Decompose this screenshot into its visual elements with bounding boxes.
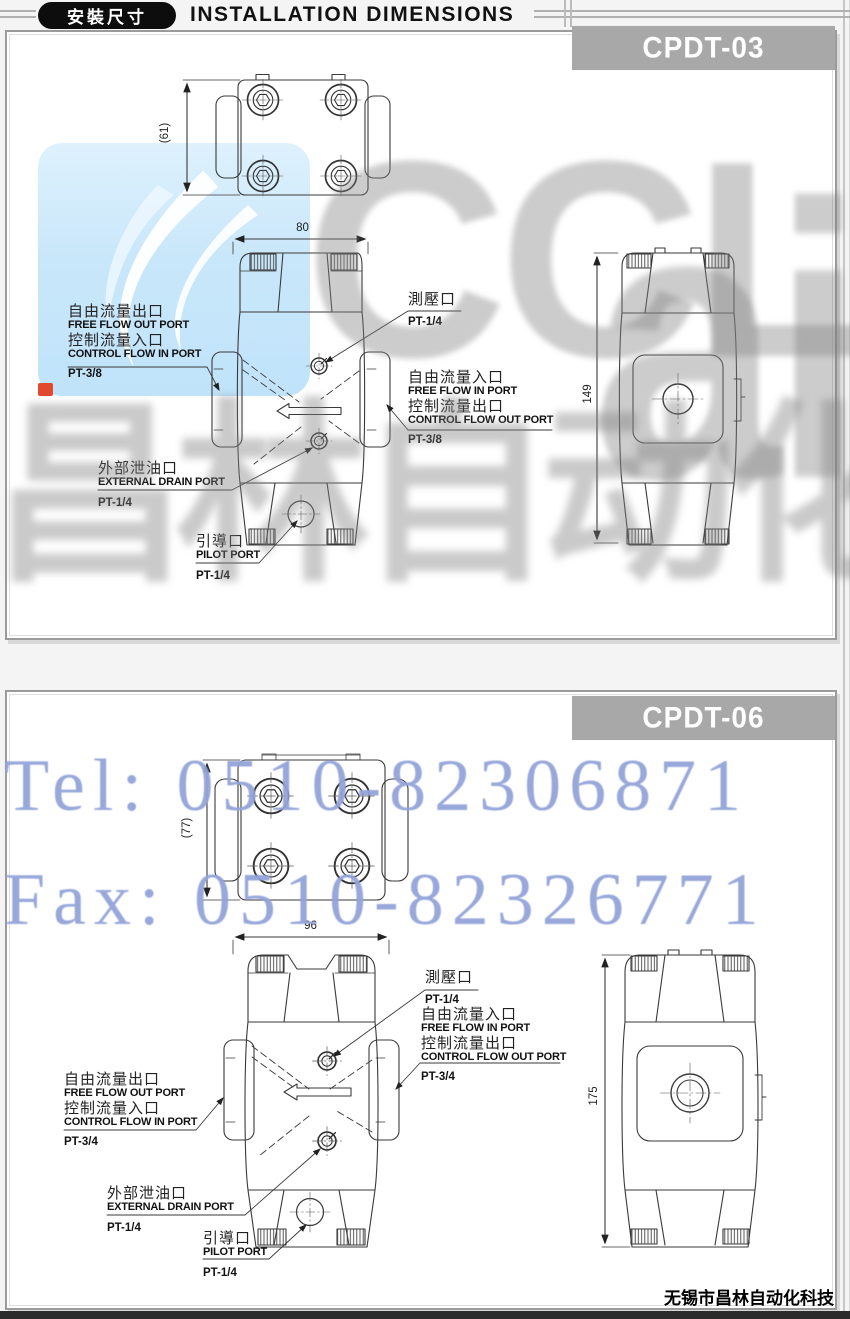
cpdt03-side-view xyxy=(594,248,745,545)
model-badge-cpdt06: CPDT-06 xyxy=(572,696,835,740)
page-bottom-strip xyxy=(0,1311,850,1319)
port-label-left-cpdt06: 自由流量出口 FREE FLOW OUT PORT 控制流量入口 CONTROL… xyxy=(64,1071,197,1148)
port-size: PT-3/4 xyxy=(421,1071,566,1083)
port-label-pilot-cpdt06: 引導口 PILOT PORT PT-1/4 xyxy=(203,1230,267,1279)
port-label-cn: 測壓口 xyxy=(408,291,456,308)
port-label-gauge-cpdt06: 測壓口 PT-1/4 xyxy=(425,969,473,1006)
model-badge-label: CPDT-06 xyxy=(642,701,764,735)
model-badge-label: CPDT-03 xyxy=(642,31,764,65)
port-label-en: EXTERNAL DRAIN PORT xyxy=(98,477,225,489)
section-badge: 安裝尺寸 xyxy=(38,2,176,29)
port-label-cn: 控制流量入口 xyxy=(68,332,201,349)
port-size: PT-1/4 xyxy=(425,994,473,1006)
port-label-en: FREE FLOW IN PORT xyxy=(421,1023,566,1035)
dim-body-height-cpdt03: 149 xyxy=(582,374,594,414)
port-label-en: FREE FLOW OUT PORT xyxy=(68,320,201,332)
port-label-en: CONTROL FLOW OUT PORT xyxy=(408,415,553,427)
port-size: PT-3/4 xyxy=(64,1136,197,1148)
port-label-left-cpdt03: 自由流量出口 FREE FLOW OUT PORT 控制流量入口 CONTROL… xyxy=(68,303,201,380)
cpdt06-top-view xyxy=(203,754,408,900)
port-label-cn: 控制流量出口 xyxy=(408,398,553,415)
port-label-en: PILOT PORT xyxy=(203,1247,267,1259)
port-label-pilot-cpdt03: 引導口 PILOT PORT PT-1/4 xyxy=(196,533,260,582)
port-label-right-cpdt06: 自由流量入口 FREE FLOW IN PORT 控制流量出口 CONTROL … xyxy=(421,1006,566,1083)
port-label-cn: 控制流量入口 xyxy=(64,1100,197,1117)
port-label-en: PILOT PORT xyxy=(196,550,260,562)
port-label-en: CONTROL FLOW OUT PORT xyxy=(421,1052,566,1064)
port-size: PT-1/4 xyxy=(203,1267,267,1279)
port-size: PT-1/4 xyxy=(196,570,260,582)
header-rule-right xyxy=(534,10,850,18)
port-label-en: CONTROL FLOW IN PORT xyxy=(64,1117,197,1129)
dim-mount-height-cpdt06: (77) xyxy=(181,811,193,845)
cpdt06-side-view xyxy=(602,950,766,1247)
dim-body-width-cpdt03: 80 xyxy=(275,222,330,234)
port-label-en: CONTROL FLOW IN PORT xyxy=(68,349,201,361)
port-size: PT-3/8 xyxy=(68,368,201,380)
catalog-page: 安裝尺寸 INSTALLATION DIMENSIONS CPDT-03 CPD… xyxy=(0,0,850,1319)
header-rule-left xyxy=(0,10,36,18)
cpdt03-top-view xyxy=(183,75,390,198)
port-label-cn: 自由流量入口 xyxy=(421,1006,566,1023)
port-label-gauge-cpdt03: 測壓口 PT-1/4 xyxy=(408,291,456,328)
port-label-right-cpdt03: 自由流量入口 FREE FLOW IN PORT 控制流量出口 CONTROL … xyxy=(408,369,553,446)
dim-body-width-cpdt06: 96 xyxy=(283,920,338,932)
port-label-cn: 自由流量入口 xyxy=(408,369,553,386)
port-label-en: FREE FLOW IN PORT xyxy=(408,386,553,398)
section-badge-label: 安裝尺寸 xyxy=(67,3,147,28)
footer-company-name: 无锡市昌林自动化科技 xyxy=(664,1284,834,1309)
port-label-cn: 外部泄油口 xyxy=(98,460,225,477)
port-label-cn: 引導口 xyxy=(203,1230,267,1247)
model-badge-cpdt03: CPDT-03 xyxy=(572,26,835,70)
page-title: INSTALLATION DIMENSIONS xyxy=(190,3,514,27)
port-label-drain-cpdt06: 外部泄油口 EXTERNAL DRAIN PORT PT-1/4 xyxy=(107,1185,234,1234)
port-label-cn: 自由流量出口 xyxy=(68,303,201,320)
port-label-cn: 自由流量出口 xyxy=(64,1071,197,1088)
port-size: PT-1/4 xyxy=(98,497,225,509)
port-size: PT-1/4 xyxy=(408,316,456,328)
header-corner-rule xyxy=(564,0,572,27)
dim-mount-height-cpdt03: (61) xyxy=(159,116,171,150)
port-size: PT-3/8 xyxy=(408,434,553,446)
port-label-cn: 外部泄油口 xyxy=(107,1185,234,1202)
port-label-cn: 測壓口 xyxy=(425,969,473,986)
port-label-cn: 控制流量出口 xyxy=(421,1035,566,1052)
port-label-en: EXTERNAL DRAIN PORT xyxy=(107,1202,234,1214)
cpdt06-front-view xyxy=(224,937,399,1247)
port-label-en: FREE FLOW OUT PORT xyxy=(64,1088,197,1100)
dim-body-height-cpdt06: 175 xyxy=(588,1076,600,1116)
port-label-drain-cpdt03: 外部泄油口 EXTERNAL DRAIN PORT PT-1/4 xyxy=(98,460,225,509)
port-label-cn: 引導口 xyxy=(196,533,260,550)
cpdt03-front-view xyxy=(212,239,390,545)
